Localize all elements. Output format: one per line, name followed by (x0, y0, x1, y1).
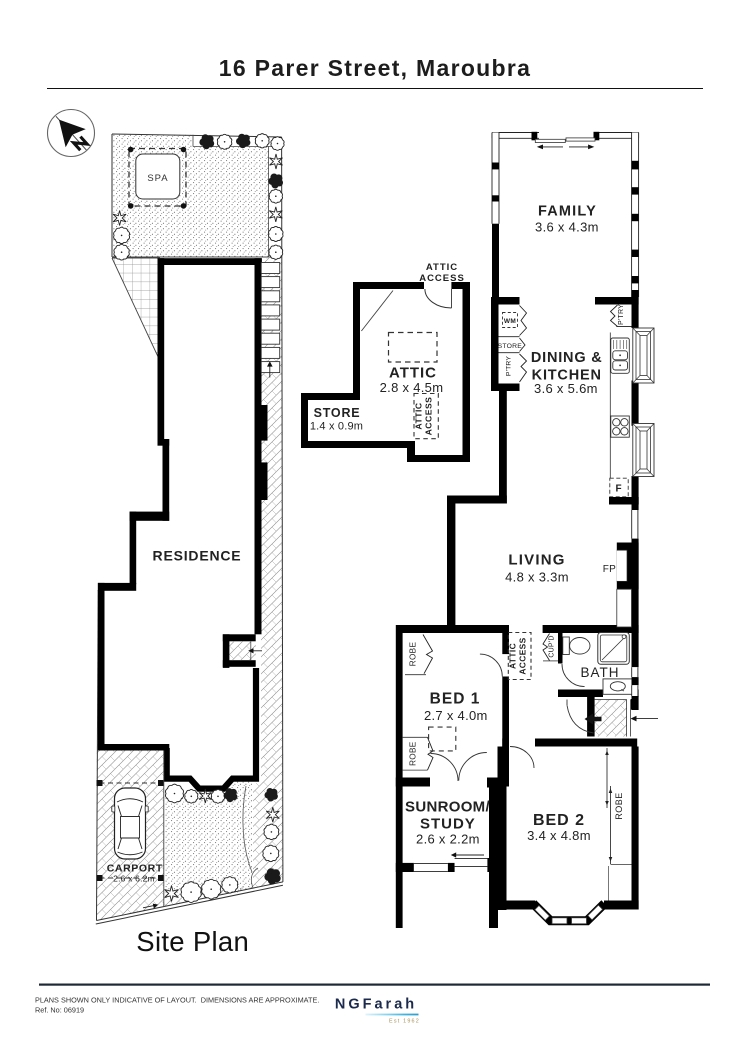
svg-text:Site Plan: Site Plan (136, 926, 249, 957)
svg-text:ROBE: ROBE (409, 642, 418, 667)
svg-text:STORE: STORE (498, 343, 523, 350)
svg-text:3.4 x 4.8m: 3.4 x 4.8m (527, 828, 591, 843)
svg-text:BED 1: BED 1 (430, 691, 481, 708)
svg-text:FP: FP (603, 564, 616, 575)
svg-text:ATTIC: ATTIC (389, 365, 437, 382)
svg-text:1.4 x 0.9m: 1.4 x 0.9m (310, 421, 363, 433)
svg-text:2.6 x 6.2m: 2.6 x 6.2m (113, 874, 155, 884)
svg-text:DINING &: DINING & (531, 350, 603, 366)
svg-text:WM: WM (504, 318, 516, 325)
svg-text:ROBE: ROBE (614, 792, 624, 820)
svg-text:RESIDENCE: RESIDENCE (153, 548, 242, 564)
svg-text:4.8 x 3.3m: 4.8 x 3.3m (505, 570, 569, 585)
svg-text:BATH: BATH (580, 665, 619, 680)
svg-text:ACCESS: ACCESS (518, 637, 528, 674)
svg-text:SPA: SPA (147, 173, 168, 184)
svg-text:FAMILY: FAMILY (538, 204, 597, 220)
svg-text:3.6 x 5.6m: 3.6 x 5.6m (534, 381, 598, 396)
svg-text:STUDY: STUDY (420, 816, 476, 833)
svg-text:ATTIC: ATTIC (508, 643, 518, 669)
svg-text:NGFarah: NGFarah (335, 997, 417, 1013)
svg-text:Est 1962: Est 1962 (389, 1019, 420, 1025)
svg-text:ATTIC: ATTIC (414, 402, 424, 429)
svg-text:CUP'D: CUP'D (548, 635, 555, 657)
svg-text:F: F (615, 484, 621, 495)
svg-text:3.6 x 4.3m: 3.6 x 4.3m (535, 220, 599, 235)
svg-text:2.7 x 4.0m: 2.7 x 4.0m (424, 708, 488, 723)
svg-text:ACCESS: ACCESS (424, 397, 434, 436)
svg-text:ATTIC: ATTIC (426, 262, 458, 273)
svg-text:ROBE: ROBE (409, 741, 418, 766)
svg-text:2.6 x 2.2m: 2.6 x 2.2m (416, 832, 480, 847)
svg-text:P'TRY: P'TRY (618, 304, 625, 325)
svg-text:PLANS SHOWN ONLY INDICATIVE OF: PLANS SHOWN ONLY INDICATIVE OF LAYOUT. D… (35, 996, 319, 1005)
svg-text:P'TRY: P'TRY (506, 356, 513, 377)
svg-text:16 Parer Street, Maroubra: 16 Parer Street, Maroubra (219, 55, 531, 81)
svg-text:2.8 x 4.5m: 2.8 x 4.5m (380, 380, 444, 395)
svg-text:Ref. No: 06919: Ref. No: 06919 (35, 1006, 84, 1015)
svg-text:SUNROOM/: SUNROOM/ (405, 799, 490, 816)
svg-text:STORE: STORE (314, 406, 361, 420)
svg-text:BED 2: BED 2 (533, 812, 585, 829)
svg-text:LIVING: LIVING (508, 552, 565, 569)
